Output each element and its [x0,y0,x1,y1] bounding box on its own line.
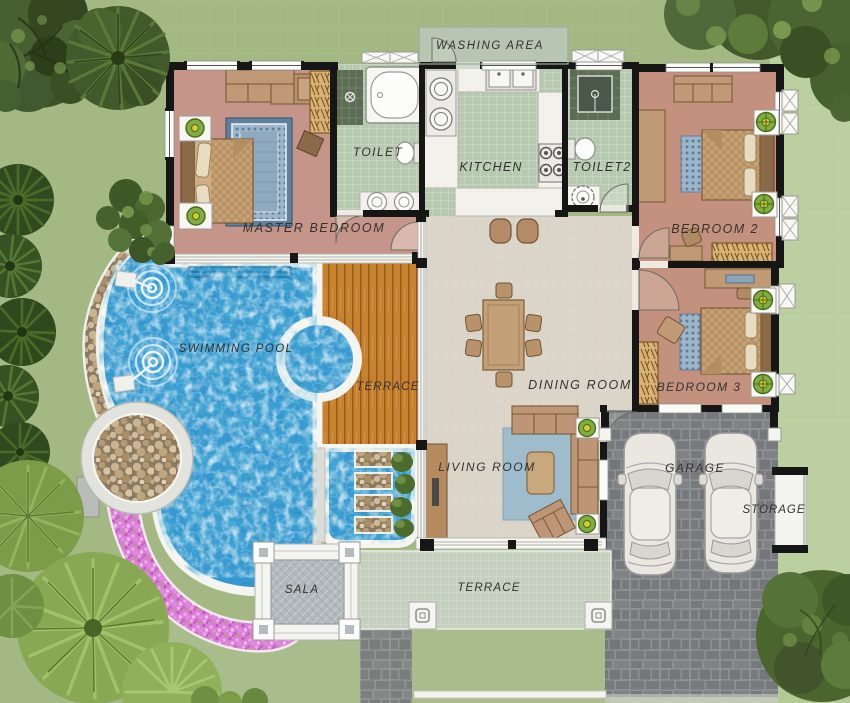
svg-text:LIVING ROOM: LIVING ROOM [438,460,536,474]
svg-text:TERRACE: TERRACE [356,381,419,393]
svg-text:DINING ROOM: DINING ROOM [528,378,632,392]
svg-text:WASHING AREA: WASHING AREA [436,40,544,52]
svg-text:TOILET: TOILET [353,145,403,159]
svg-text:STORAGE: STORAGE [742,504,805,516]
svg-text:MASTER BEDROOM: MASTER BEDROOM [243,221,386,235]
svg-text:TOILET2: TOILET2 [573,160,632,174]
svg-text:GARAGE: GARAGE [665,461,725,475]
svg-text:BEDROOM 3: BEDROOM 3 [657,380,742,394]
svg-text:BEDROOM 2: BEDROOM 2 [671,222,759,236]
svg-text:KITCHEN: KITCHEN [459,160,522,174]
svg-text:TERRACE: TERRACE [457,582,520,594]
svg-text:SALA: SALA [285,584,319,596]
svg-text:SWIMMING POOL: SWIMMING POOL [179,343,294,355]
